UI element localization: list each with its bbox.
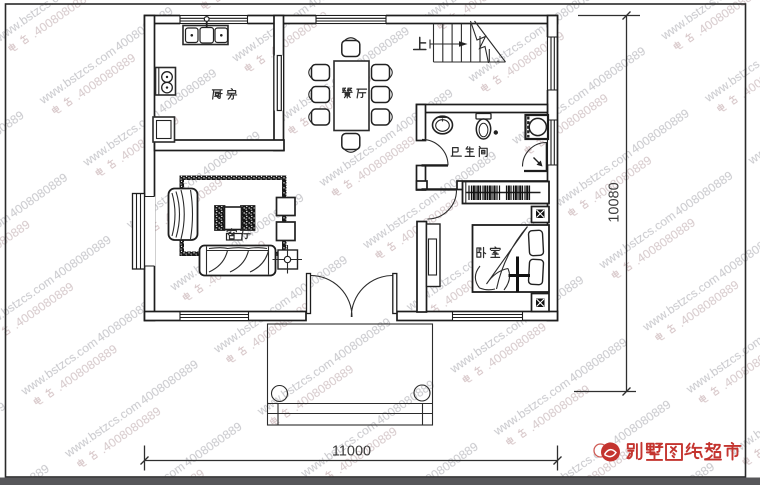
svg-text:10080: 10080 [607, 182, 623, 222]
svg-text:11000: 11000 [332, 444, 371, 460]
